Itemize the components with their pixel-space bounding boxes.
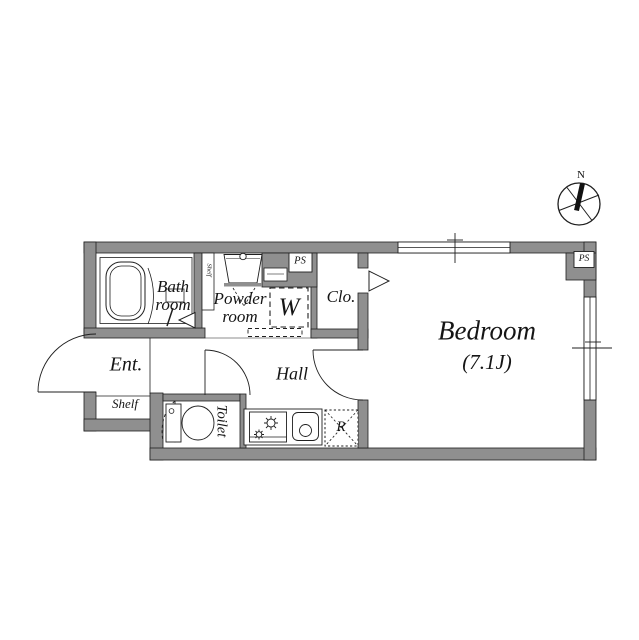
- bedroom-openings: [369, 252, 594, 292]
- toilet-bowl-icon: [182, 406, 214, 440]
- washbasin-counter-edge: [224, 283, 262, 287]
- closet-entry-arrow-icon: [369, 271, 389, 291]
- thin-partitions: [96, 338, 311, 396]
- tiny-annotation-box: [264, 268, 287, 281]
- kitchen-fixtures: [244, 409, 358, 446]
- shelf-niche-box: [202, 253, 214, 310]
- bedroom-door-arc: [313, 350, 363, 400]
- stove-icon: [250, 412, 287, 442]
- floorplan-canvas: Bath room Powder room Clo. W PS PS Bedro…: [0, 0, 639, 640]
- toilet-fixtures: [166, 404, 214, 442]
- wall-left-upper: [84, 242, 96, 334]
- wall-top: [84, 242, 596, 253]
- entrance-door-arc: [38, 334, 96, 392]
- powder-sliding-door-dashed: [248, 329, 302, 337]
- refrigerator-box: [325, 410, 358, 446]
- wall-toilet-top: [163, 394, 240, 401]
- washbasin-faucet-icon: [240, 253, 246, 259]
- wall-bedroom-top: [358, 253, 368, 268]
- bath-entry-arrow-icon: [179, 313, 195, 329]
- wall-bedroom-mid: [358, 293, 368, 350]
- bath-door-curve: [148, 268, 154, 324]
- wall-bottom: [150, 448, 596, 460]
- compass-icon: [558, 183, 600, 225]
- bath-counter-box: [166, 289, 184, 302]
- toilet-handle-icon: [169, 409, 174, 414]
- bathroom-fixtures: [100, 258, 195, 329]
- wall-bath-divider: [84, 328, 205, 338]
- pipe-space-top-box: [289, 253, 312, 272]
- powder-room-fixtures: [202, 253, 312, 327]
- hall-door-arc: [205, 350, 250, 395]
- wall-bedroom-bottom: [358, 400, 368, 448]
- washing-machine-box: [270, 288, 308, 327]
- pipe-space-corner-box: [574, 252, 594, 268]
- floorplan-drawing: [0, 0, 639, 640]
- powder-door-dashed-v: [233, 288, 255, 306]
